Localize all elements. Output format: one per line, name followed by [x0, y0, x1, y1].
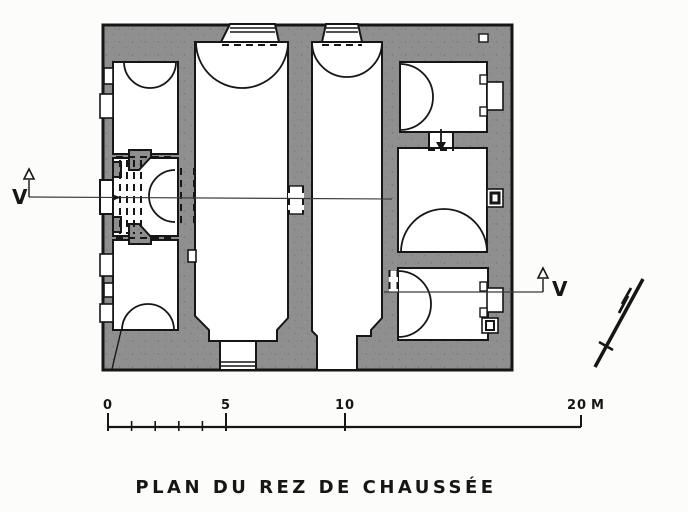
scale-label-0: 0 [103, 398, 113, 413]
room-bottom-left [113, 240, 178, 330]
floor-plan-svg: V V 0 5 10 20 M PLAN DU REZ DE CHAUSSÉE [0, 0, 688, 512]
room-top-left [113, 62, 178, 154]
window-left-2 [100, 254, 113, 276]
window-reveal-1a [480, 75, 487, 84]
window-left-1 [100, 94, 113, 118]
wall-fixture-bottom-right [482, 318, 498, 333]
opening-top-hall-1 [221, 24, 279, 42]
window-right-1 [487, 82, 503, 110]
window-left-3 [100, 304, 113, 322]
scale-label-10: 10 [335, 398, 355, 413]
section-arrow-up-icon [538, 268, 548, 278]
wall-niche-left-2 [104, 283, 113, 297]
scale-label-5: 5 [221, 398, 231, 413]
window-reveal-2a [480, 282, 487, 291]
wall-niche-hall-1 [188, 250, 196, 262]
opening-top-hall-2 [322, 24, 362, 42]
section-arrow-up-icon [24, 169, 34, 179]
room-middle-right [398, 148, 487, 252]
scale-unit-label: M [591, 398, 605, 413]
room-bottom-right [398, 268, 488, 340]
scale-label-20: 20 [567, 398, 587, 413]
scale-bar: 0 5 10 20 M [103, 398, 605, 431]
section-marker-right-label: V [552, 277, 568, 301]
room-hall-1 [195, 42, 288, 341]
section-marker-left-label: V [12, 185, 28, 209]
wall-niche-left-1 [104, 68, 113, 84]
room-hall-2 [312, 42, 382, 370]
north-arrow-icon [595, 279, 643, 367]
window-reveal-1b [480, 107, 487, 116]
wall-niche-top-right [479, 34, 488, 42]
building-plan [100, 24, 512, 370]
wall-fixture-middle-right [487, 189, 503, 207]
plan-title: PLAN DU REZ DE CHAUSSÉE [135, 476, 496, 498]
wall-opening-between-halls [288, 186, 304, 214]
room-top-right [400, 62, 487, 132]
window-reveal-2b [480, 308, 487, 317]
drawing-sheet: V V 0 5 10 20 M PLAN DU REZ DE CHAUSSÉE [0, 0, 688, 512]
